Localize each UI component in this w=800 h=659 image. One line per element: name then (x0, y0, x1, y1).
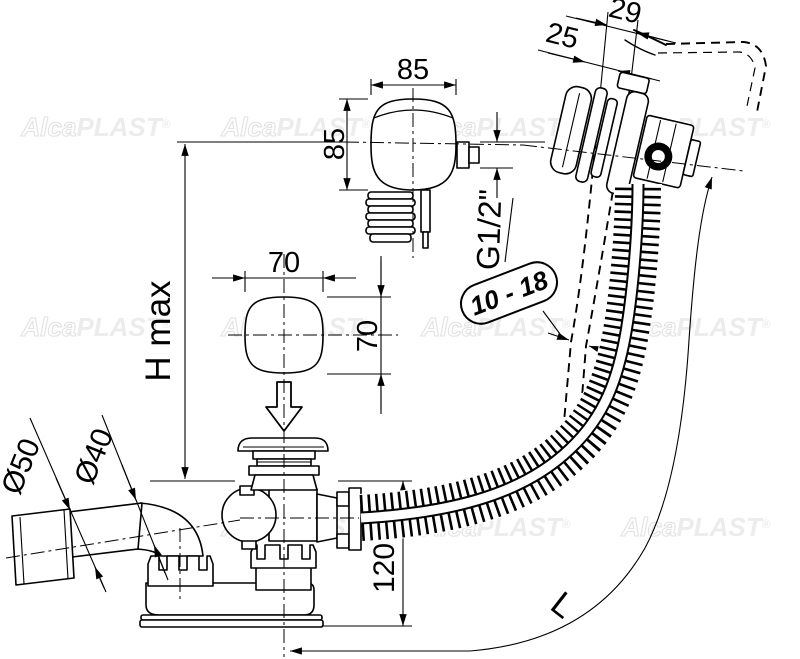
dim-label-h-max: H max (139, 280, 178, 382)
dim-label-70-height: 70 (352, 320, 384, 352)
outlet-pipe (64, 503, 142, 558)
dim-label-dia50: Ø50 (0, 434, 47, 499)
dim-label-thread: G1/2" (470, 189, 509, 271)
dimension-29: 29 (566, 0, 676, 43)
brand-watermark: AlcaPLAST® (421, 312, 571, 342)
knob-pull-rod (421, 190, 430, 232)
bath-drain-overflow-diagram: AlcaPLAST®AlcaPLAST®AlcaPLAST®AlcaPLAST®… (0, 0, 800, 659)
dim-label-29: 29 (606, 0, 645, 31)
knob-bellows (366, 192, 415, 242)
dim-label-25: 25 (543, 17, 582, 56)
brand-watermark: AlcaPLAST® (21, 112, 171, 142)
drain-tee-ball (222, 488, 276, 542)
dim-label-dia40: Ø40 (68, 424, 120, 489)
dim-label-85-height: 85 (319, 128, 351, 160)
plug-cap (238, 438, 328, 451)
brand-watermark: AlcaPLAST® (621, 512, 771, 542)
dim-label-85-width: 85 (397, 54, 429, 86)
outlet-elbow (137, 503, 203, 556)
knob-side-port (457, 142, 469, 168)
technical-diagram-page: AlcaPLAST®AlcaPLAST®AlcaPLAST®AlcaPLAST®… (0, 0, 800, 659)
dim-label-120: 120 (368, 543, 401, 593)
waste-drain-assembly (12, 438, 361, 627)
hose-union-nut (349, 488, 361, 550)
drain-flange (140, 620, 323, 627)
